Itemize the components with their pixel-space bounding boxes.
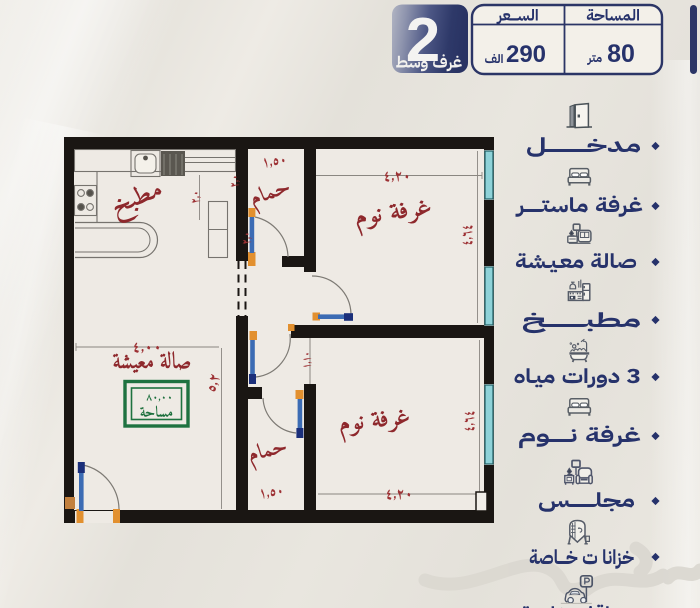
svg-text:80: 80: [607, 40, 635, 68]
svg-text:290: 290: [506, 41, 546, 68]
